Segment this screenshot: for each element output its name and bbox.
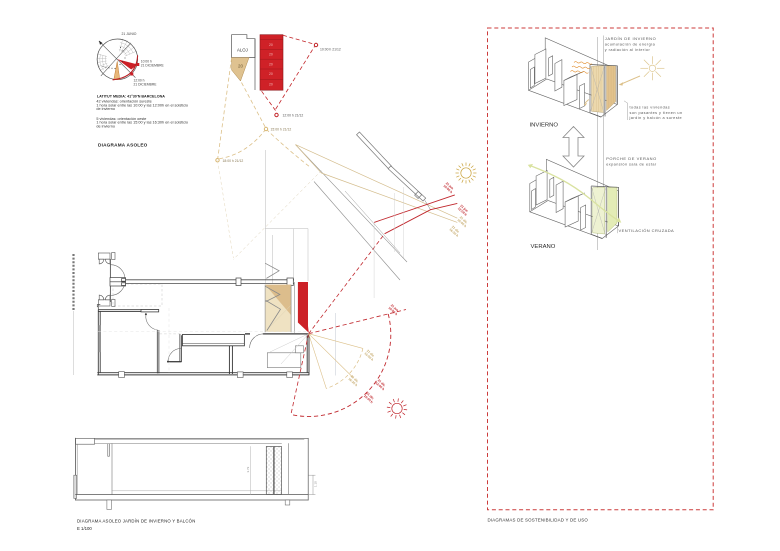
svg-text:20: 20	[269, 72, 273, 76]
svg-text:jardín y balcón a sureste: jardín y balcón a sureste	[629, 116, 683, 120]
svg-text:20: 20	[269, 62, 273, 66]
svg-text:10:00 h 21/12: 10:00 h 21/12	[320, 48, 341, 52]
svg-text:18:00 h 21/12: 18:00 h 21/12	[223, 159, 244, 163]
svg-text:VERANO: VERANO	[531, 244, 556, 250]
svg-text:12:00 h 21/12: 12:00 h 21/12	[283, 114, 304, 118]
svg-text:LATITUT MEDIA: 41°30'N BARCELO: LATITUT MEDIA: 41°30'N BARCELONA	[97, 95, 165, 99]
svg-text:20: 20	[269, 53, 273, 57]
svg-text:PORCHE DE VERANO: PORCHE DE VERANO	[606, 156, 657, 161]
svg-text:DIAGRAMAS DE SOSTENIBILIDAD Y: DIAGRAMAS DE SOSTENIBILIDAD Y DE USO	[488, 518, 589, 523]
svg-text:VENTILACIÓN CRUZADA: VENTILACIÓN CRUZADA	[619, 228, 675, 233]
svg-text:21 DICIEMBRE: 21 DICIEMBRE	[141, 63, 165, 67]
svg-text:ALOJ: ALOJ	[237, 48, 248, 53]
svg-text:20: 20	[269, 43, 273, 47]
svg-text:E 1/100: E 1/100	[77, 526, 92, 531]
svg-text:1.10: 1.10	[313, 481, 317, 487]
svg-text:JARDÍN DE INVIERNO: JARDÍN DE INVIERNO	[605, 36, 656, 41]
svg-text:15:00 h 21/12: 15:00 h 21/12	[271, 128, 292, 132]
svg-text:DIAGRAMA ASOLEO: DIAGRAMA ASOLEO	[98, 143, 148, 148]
svg-text:20: 20	[269, 83, 273, 87]
svg-text:3.72: 3.72	[246, 466, 250, 472]
svg-text:de invierno: de invierno	[96, 124, 115, 128]
svg-text:acumulación de energía: acumulación de energía	[605, 43, 656, 47]
svg-text:expansión sala de estar: expansión sala de estar	[606, 163, 657, 167]
svg-text:de invierno: de invierno	[96, 107, 115, 111]
svg-text:y radiación al interior: y radiación al interior	[605, 48, 651, 52]
svg-text:20: 20	[238, 64, 243, 69]
svg-text:son pasantes y tienen un: son pasantes y tienen un	[630, 111, 683, 115]
svg-text:DIAGRAMA ASOLEO JARDÍN DE INVI: DIAGRAMA ASOLEO JARDÍN DE INVIERNO Y BAL…	[77, 519, 196, 524]
svg-text:INVIERNO: INVIERNO	[530, 123, 559, 129]
svg-text:21 JUNIO: 21 JUNIO	[122, 32, 137, 36]
svg-text:21 DICIEMBRE: 21 DICIEMBRE	[134, 82, 158, 86]
svg-text:todas las viviendas: todas las viviendas	[630, 106, 671, 110]
